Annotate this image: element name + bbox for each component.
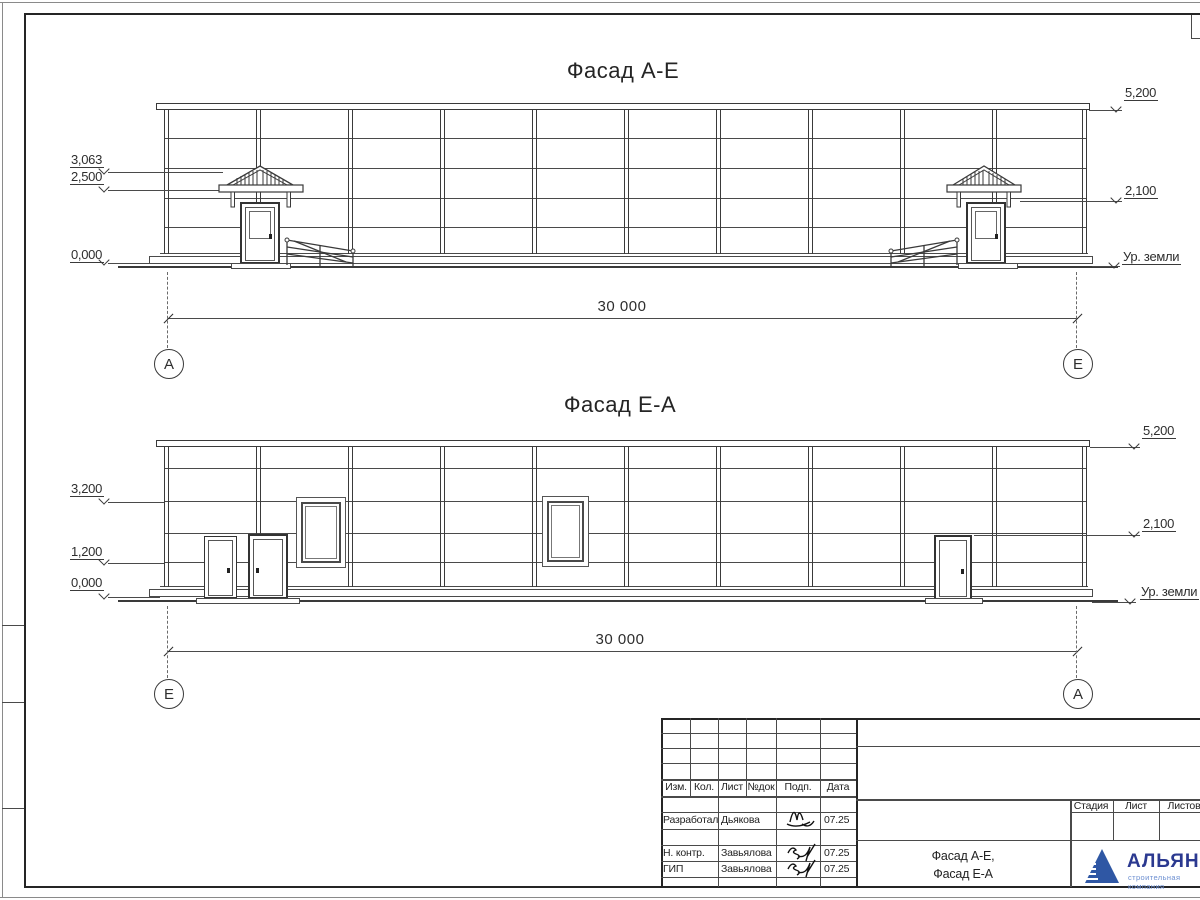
col-header-kol: Кол.: [694, 781, 714, 793]
axis-extension-line: [1076, 606, 1077, 678]
ramp-railing: [284, 235, 356, 269]
facade-column: [900, 110, 905, 254]
facade-column: [532, 110, 537, 254]
stage-header: Стадия: [1074, 800, 1109, 812]
facade-column: [532, 447, 537, 587]
facade-column: [1082, 447, 1087, 587]
company-tagline: строительная компания: [1128, 873, 1200, 891]
elevation-label: 0,000: [70, 575, 104, 591]
frame-left: [24, 13, 26, 887]
door-handle: [269, 234, 272, 239]
margin-cell-divider: [2, 625, 24, 626]
staff-name: Завьялова: [721, 847, 772, 859]
door-handle: [256, 568, 259, 573]
drawing-sheet: { "drawing": { "facades": [ { "title": "…: [0, 0, 1200, 900]
facade-top-title: Фасад А-Е: [567, 58, 679, 84]
axis-marker: Е: [154, 679, 184, 709]
staff-date: 07.25: [824, 863, 849, 875]
elevation-label: 0,000: [70, 247, 104, 263]
elevation-leader-line: [108, 263, 172, 264]
facade-column: [808, 110, 813, 254]
facade-column: [716, 110, 721, 254]
entrance-door: [240, 202, 280, 264]
elevation-label: 2,100: [1124, 183, 1158, 199]
facade-column: [716, 447, 721, 587]
elevation-label: 1,200: [70, 544, 104, 560]
staff-date: 07.25: [824, 847, 849, 859]
axis-marker: А: [154, 349, 184, 379]
door-handle: [961, 569, 964, 574]
entrance-step: [925, 598, 983, 604]
margin-cell-divider: [2, 808, 24, 809]
dimension-line: [168, 318, 1078, 319]
elevation-label: 3,063: [70, 152, 104, 168]
elevation-label: 5,200: [1124, 85, 1158, 101]
axis-marker: А: [1063, 679, 1093, 709]
sheets-header: Листов: [1168, 800, 1200, 812]
window: [296, 497, 346, 568]
sheet-edge-bottom: [0, 897, 1200, 898]
facade-column: [348, 110, 353, 254]
signature: [782, 859, 820, 876]
signature: [782, 800, 820, 830]
staff-role: Разработал: [663, 814, 718, 826]
entrance-step: [958, 263, 1018, 269]
facade-column: [624, 447, 629, 587]
facade-roof-band: [156, 103, 1090, 110]
ramp-railing: [888, 235, 960, 269]
elevation-label: 3,200: [70, 481, 104, 497]
facade-door: [934, 535, 972, 600]
facade-column: [1082, 110, 1087, 254]
col-header-izm: Изм.: [665, 781, 687, 793]
facade-roof-band: [156, 440, 1090, 447]
facade-column: [900, 447, 905, 587]
facade-door: [204, 536, 237, 598]
elevation-leader-line: [974, 535, 1140, 536]
elevation-leader-line: [108, 597, 160, 598]
axis-extension-line: [1076, 272, 1077, 348]
staff-role: ГИП: [663, 863, 683, 875]
col-header-sign: Подп.: [785, 781, 812, 793]
company-logo-icon: [1085, 847, 1121, 885]
dimension-line: [168, 651, 1078, 652]
staff-role: Н. контр.: [663, 847, 705, 859]
staff-date: 07.25: [824, 814, 849, 826]
axis-marker: Е: [1063, 349, 1093, 379]
entrance-step: [231, 263, 291, 269]
facade-column: [440, 447, 445, 587]
col-header-list: Лист: [721, 781, 743, 793]
elevation-leader-line: [1020, 201, 1122, 202]
corner-stamp-box: [1191, 38, 1200, 39]
sheet-edge-left: [2, 2, 3, 897]
entrance-step: [196, 598, 300, 604]
frame-bottom: [24, 886, 1200, 888]
col-header-docno: №док: [747, 781, 774, 793]
axis-extension-line: [167, 606, 168, 678]
facade-column: [992, 447, 997, 587]
signature: [782, 843, 820, 860]
window-glass: [305, 506, 337, 559]
facade-column: [440, 110, 445, 254]
elevation-leader-line: [108, 563, 164, 564]
margin-cell-divider: [2, 702, 24, 703]
facade-column: [164, 110, 169, 254]
facade-column: [624, 110, 629, 254]
corner-stamp-box: [1191, 15, 1192, 38]
ground-level-label: Ур. земли: [1122, 249, 1181, 265]
elevation-leader-line: [108, 502, 164, 503]
staff-name: Завьялова: [721, 863, 772, 875]
col-header-date: Дата: [827, 781, 849, 793]
door-handle: [227, 568, 230, 573]
facade-column: [164, 447, 169, 587]
sheet-edge-top: [0, 2, 1200, 3]
axis-extension-line: [167, 272, 168, 348]
dimension-label: 30 000: [598, 298, 647, 315]
dimension-label: 30 000: [596, 631, 645, 648]
door-handle: [995, 234, 998, 239]
frame-top: [24, 13, 1200, 15]
elevation-leader-line: [108, 190, 220, 191]
facade-door: [248, 534, 288, 599]
window-glass: [551, 505, 580, 558]
sheet-header: Лист: [1125, 800, 1147, 812]
elevation-label: 5,200: [1142, 423, 1176, 439]
entrance-door: [966, 202, 1006, 264]
door-glass: [249, 211, 271, 239]
window: [542, 496, 589, 567]
company-name: АЛЬЯНС: [1127, 851, 1200, 873]
elevation-label: 2,500: [70, 169, 104, 185]
ground-level-label: Ур. земли: [1140, 584, 1199, 600]
facade-column: [808, 447, 813, 587]
elevation-leader-line: [108, 172, 223, 173]
facade-column: [348, 447, 353, 587]
doc-title-line2: Фасад Е-А: [933, 867, 992, 881]
staff-name: Дьякова: [721, 814, 760, 826]
door-glass: [975, 211, 997, 239]
doc-title-line1: Фасад А-Е,: [932, 849, 995, 863]
facade-bottom-title: Фасад Е-А: [564, 392, 676, 418]
elevation-label: 2,100: [1142, 516, 1176, 532]
